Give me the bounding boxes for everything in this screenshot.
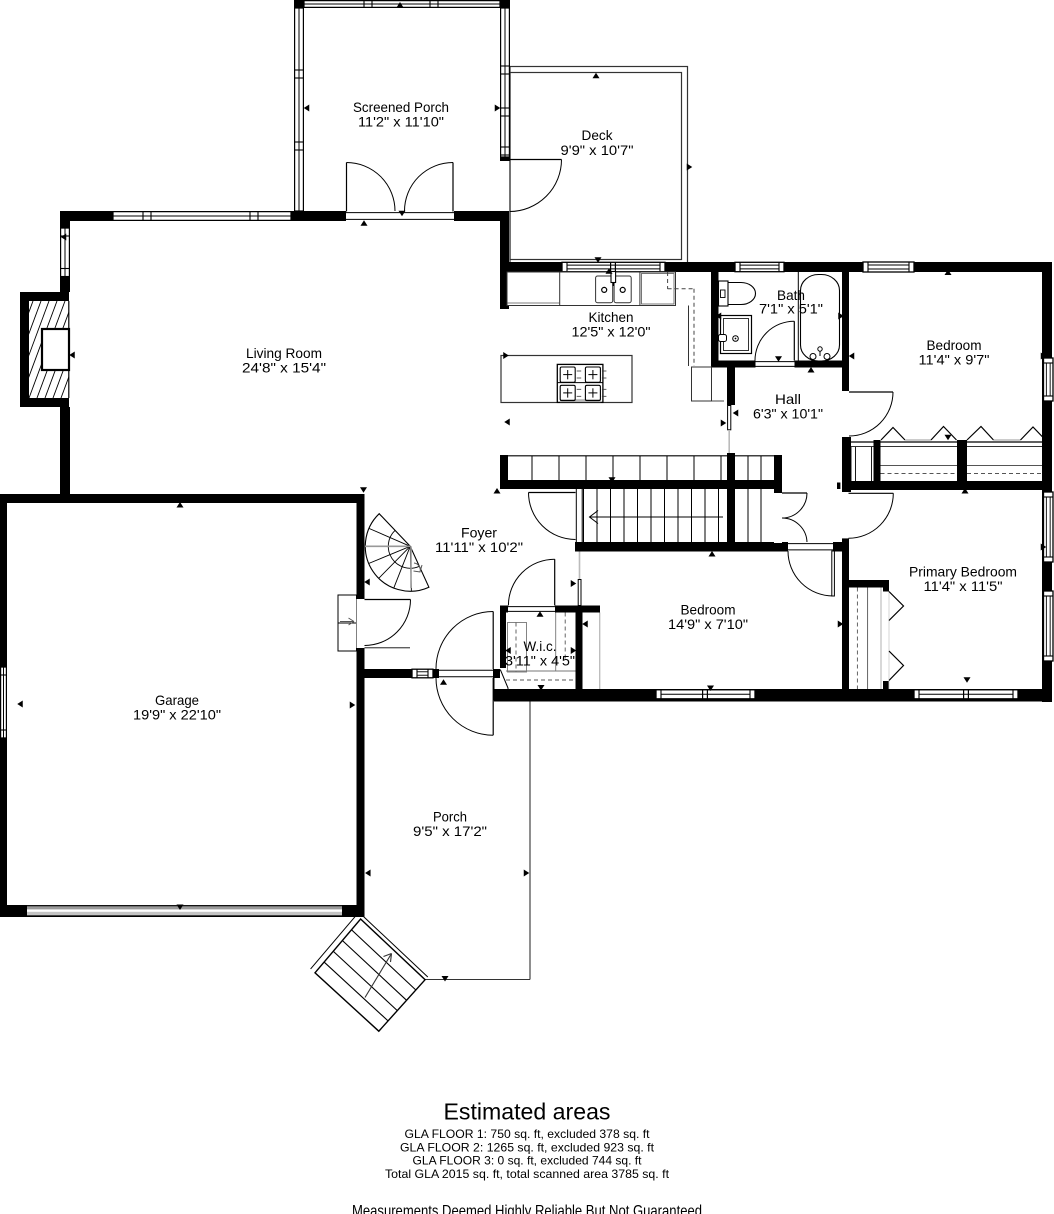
svg-text:11'4" x 11'5": 11'4" x 11'5" <box>924 578 1003 594</box>
svg-text:24'8" x 15'4": 24'8" x 15'4" <box>242 360 326 376</box>
svg-text:11'2" x 11'10": 11'2" x 11'10" <box>358 114 444 130</box>
svg-text:GLA FLOOR 3: 0 sq. ft, exclude: GLA FLOOR 3: 0 sq. ft, excluded 744 sq. … <box>413 1154 643 1168</box>
svg-text:3'11" x 4'5": 3'11" x 4'5" <box>505 653 575 669</box>
svg-text:9'9" x 10'7": 9'9" x 10'7" <box>561 142 634 158</box>
svg-text:11'11" x 10'2": 11'11" x 10'2" <box>435 539 523 555</box>
svg-text:9'5" x 17'2": 9'5" x 17'2" <box>413 823 487 839</box>
svg-text:Total GLA 2015 sq. ft, total s: Total GLA 2015 sq. ft, total scanned are… <box>385 1167 670 1181</box>
svg-text:7'1" x 5'1": 7'1" x 5'1" <box>759 301 823 317</box>
svg-text:12'5" x 12'0": 12'5" x 12'0" <box>572 324 651 340</box>
svg-text:11'4" x 9'7": 11'4" x 9'7" <box>919 352 990 368</box>
svg-text:GLA FLOOR 2: 1265 sq. ft, excl: GLA FLOOR 2: 1265 sq. ft, excluded 923 s… <box>400 1141 655 1155</box>
svg-text:Deck: Deck <box>582 127 614 143</box>
svg-text:GLA FLOOR 1: 750 sq. ft, exclu: GLA FLOOR 1: 750 sq. ft, excluded 378 sq… <box>405 1127 651 1141</box>
svg-text:Estimated areas: Estimated areas <box>444 1099 611 1125</box>
svg-text:6'3" x 10'1": 6'3" x 10'1" <box>753 406 823 422</box>
svg-text:14'9" x 7'10": 14'9" x 7'10" <box>668 616 748 632</box>
svg-text:Measurements Deemed Highly Rel: Measurements Deemed Highly Reliable But … <box>352 1203 702 1214</box>
svg-text:19'9" x 22'10": 19'9" x 22'10" <box>133 707 221 723</box>
